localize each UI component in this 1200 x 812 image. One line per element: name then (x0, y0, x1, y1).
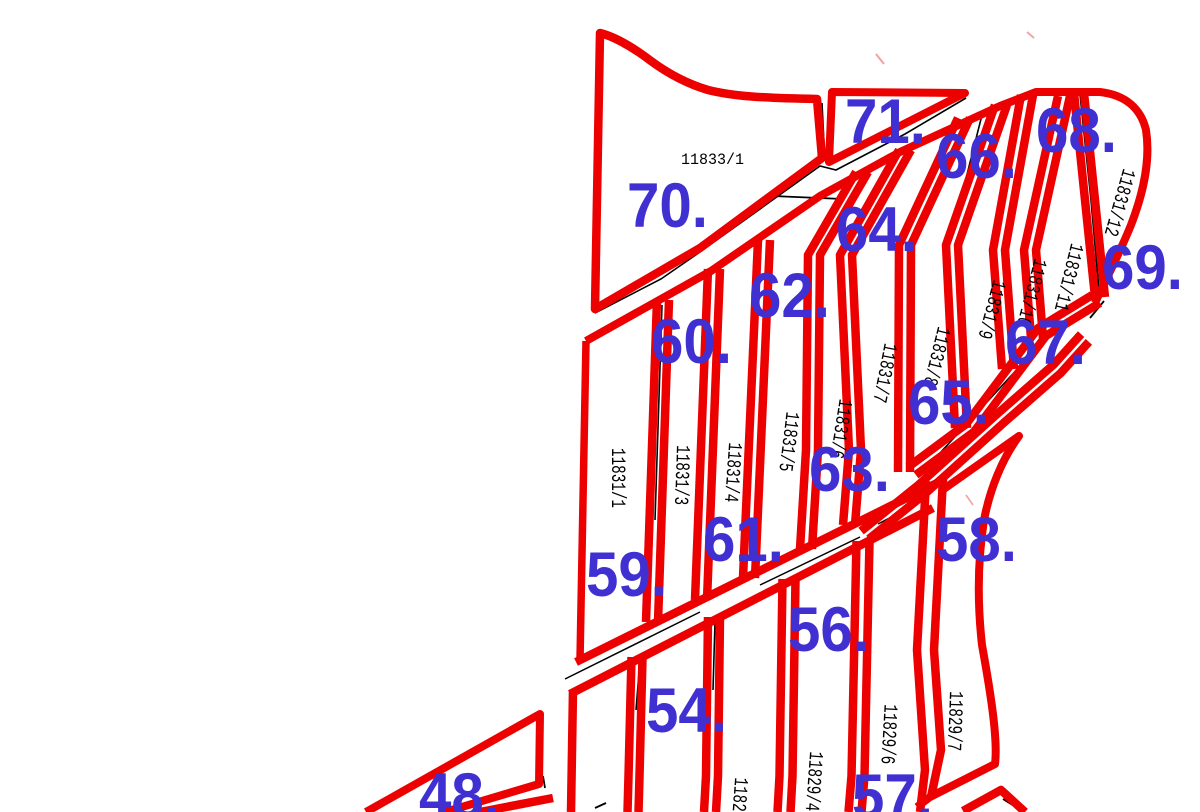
svg-text:62.: 62. (749, 261, 830, 331)
svg-text:68.: 68. (1036, 96, 1117, 166)
svg-text:57.: 57. (852, 762, 933, 812)
svg-text:11831/4: 11831/4 (718, 442, 745, 503)
svg-text:48.: 48. (419, 761, 500, 812)
svg-text:11829/7: 11829/7 (941, 691, 966, 752)
svg-text:11829/5: 11829/5 (724, 777, 751, 812)
svg-text:11829/6: 11829/6 (874, 704, 900, 765)
svg-text:63.: 63. (809, 435, 890, 505)
svg-text:69.: 69. (1102, 233, 1183, 303)
svg-text:11831/3: 11831/3 (668, 445, 693, 506)
svg-text:11829/4: 11829/4 (799, 751, 826, 812)
svg-text:66.: 66. (936, 122, 1017, 192)
svg-text:60.: 60. (651, 307, 732, 377)
svg-text:65.: 65. (908, 368, 989, 438)
svg-text:58.: 58. (936, 505, 1017, 575)
svg-text:11831/1: 11831/1 (605, 448, 628, 508)
svg-text:64.: 64. (836, 195, 917, 265)
svg-text:54.: 54. (646, 676, 727, 746)
svg-text:11833/1: 11833/1 (681, 151, 744, 169)
svg-text:71.: 71. (845, 87, 926, 157)
svg-text:70.: 70. (627, 171, 708, 241)
svg-text:67.: 67. (1005, 308, 1086, 378)
svg-text:59.: 59. (586, 540, 667, 610)
svg-text:56.: 56. (788, 595, 869, 665)
svg-text:61.: 61. (703, 505, 784, 575)
